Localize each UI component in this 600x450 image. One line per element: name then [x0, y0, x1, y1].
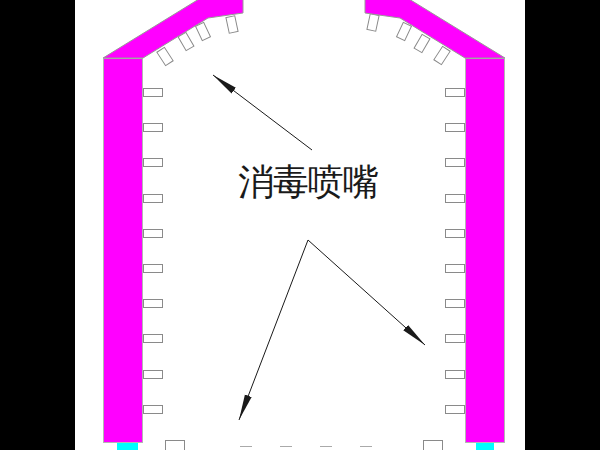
right-wall-nozzle — [445, 123, 465, 132]
right-wall-nozzle — [445, 229, 465, 238]
left-wall-panel — [103, 58, 143, 443]
left-wall-nozzle — [143, 88, 163, 97]
left-wall-nozzle — [143, 158, 163, 167]
left-roof-nozzle — [225, 15, 238, 34]
left-wall-nozzle — [143, 229, 163, 238]
nozzle-label: 消毒喷嘴 — [233, 163, 383, 203]
right-roof-nozzle — [413, 33, 430, 53]
right-wall-nozzle — [445, 158, 465, 167]
diagram-canvas: 消毒喷嘴 — [75, 0, 525, 450]
image-viewer-stage: 消毒喷嘴 — [0, 0, 600, 450]
right-roof-nozzle — [433, 45, 451, 65]
left-wall-nozzle — [143, 299, 163, 308]
left-wall-nozzle — [143, 264, 163, 273]
left-roof-nozzle — [195, 21, 211, 41]
left-wall-nozzle — [143, 370, 163, 379]
right-base-pad — [476, 443, 494, 450]
right-wall-nozzle — [445, 370, 465, 379]
right-wall-panel — [465, 58, 505, 443]
right-roof-panel — [365, 0, 505, 58]
left-roof-panel — [103, 0, 243, 58]
floor-dash — [360, 446, 372, 447]
left-base-pad — [117, 443, 138, 450]
right-wall-nozzle — [445, 334, 465, 343]
floor-box — [423, 440, 443, 450]
right-wall-nozzle — [445, 264, 465, 273]
arrow-to-lower-right-nozzles — [308, 240, 425, 345]
arrow-to-lower-left-nozzles — [239, 240, 308, 420]
floor-dash — [240, 446, 252, 447]
letterbox-right — [525, 0, 600, 450]
left-wall-nozzle — [143, 405, 163, 414]
right-wall-nozzle — [445, 405, 465, 414]
floor-box — [165, 440, 185, 450]
left-wall-nozzle — [143, 334, 163, 343]
right-wall-nozzle — [445, 88, 465, 97]
arrow-to-upper-left-nozzles — [213, 75, 312, 150]
left-roof-nozzle — [156, 46, 174, 66]
left-wall-nozzle — [143, 123, 163, 132]
right-roof-nozzle — [366, 13, 379, 32]
left-wall-nozzle — [143, 194, 163, 203]
left-roof-nozzle — [177, 31, 194, 51]
right-wall-nozzle — [445, 299, 465, 308]
right-roof-nozzle — [396, 21, 412, 41]
right-wall-nozzle — [445, 194, 465, 203]
letterbox-left — [0, 0, 75, 450]
floor-dash — [280, 446, 292, 447]
floor-dash — [320, 446, 332, 447]
